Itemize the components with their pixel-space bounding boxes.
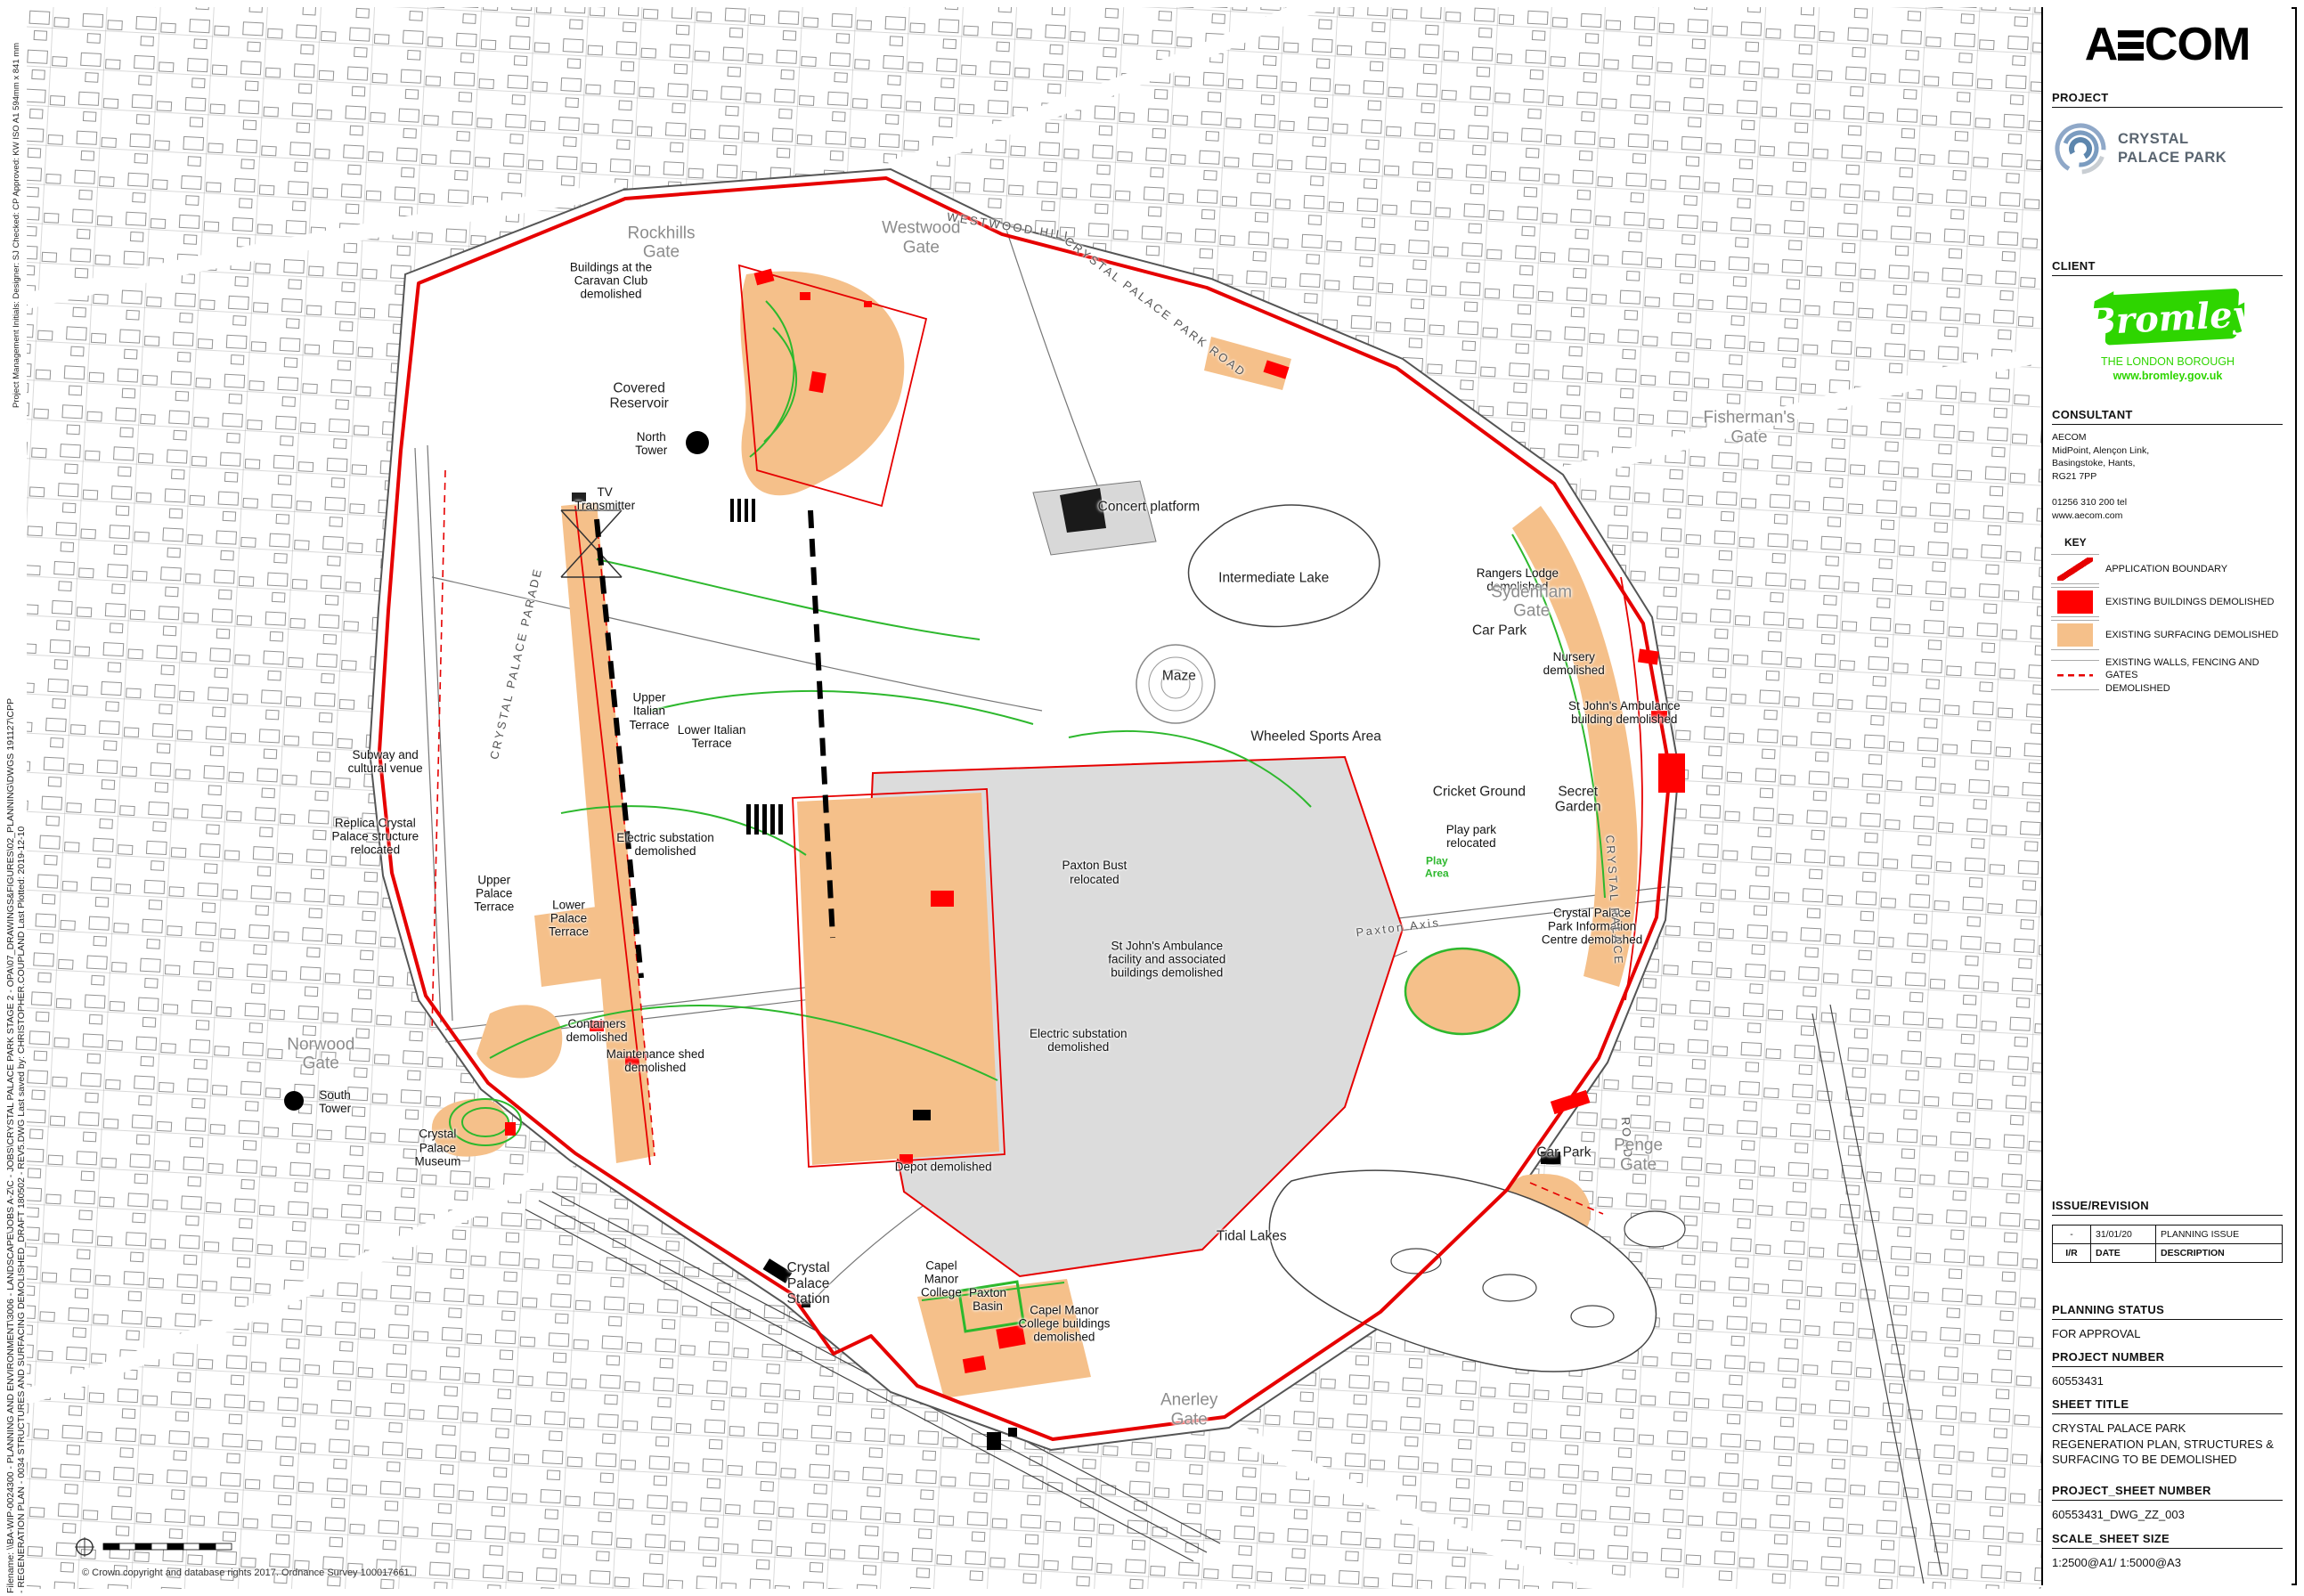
key-swatch-dash bbox=[2057, 664, 2093, 687]
key-swatch-red bbox=[2057, 590, 2093, 614]
section-planning-status: PLANNING STATUS FOR APPROVAL bbox=[2043, 1303, 2292, 1342]
map-label: Capel Manor College buildings demolished bbox=[1019, 1303, 1111, 1343]
key-item-label: EXISTING WALLS, FENCING AND GATES DEMOLI… bbox=[2105, 656, 2283, 695]
revision-cell: 31/01/20 bbox=[2091, 1225, 2156, 1244]
key-item-label: EXISTING BUILDINGS DEMOLISHED bbox=[2105, 596, 2274, 608]
map-label: Nursery demolished bbox=[1543, 650, 1605, 677]
crystal-palace-park-logo-icon bbox=[2052, 120, 2109, 177]
map-label: Capel Manor College bbox=[921, 1258, 962, 1299]
bromley-logo: Bromley THE LONDON BOROUGH www.bromley.g… bbox=[2083, 283, 2252, 383]
map-label: Maze bbox=[1162, 669, 1196, 684]
project-sheet-number-label: PROJECT_SHEET NUMBER bbox=[2052, 1484, 2283, 1501]
key-item: EXISTING WALLS, FENCING AND GATES DEMOLI… bbox=[2052, 656, 2283, 695]
map-label: Concert platform bbox=[1098, 500, 1201, 515]
map-label: St John's Ambulance building demolished bbox=[1568, 699, 1681, 726]
map-label: Upper Italian Terrace bbox=[629, 691, 669, 731]
map-label: Penge Gate bbox=[1614, 1136, 1663, 1175]
revision-header-ir: I/R bbox=[2053, 1244, 2091, 1263]
revision-cell: - bbox=[2053, 1225, 2091, 1244]
map-label: CRYSTAL PALACE PARK ROAD bbox=[1062, 235, 1249, 380]
map-label: Electric substation demolished bbox=[616, 830, 714, 857]
map-label: Play Area bbox=[1425, 856, 1449, 880]
section-project-sheet-number: PROJECT_SHEET NUMBER 60553431_DWG_ZZ_003 bbox=[2043, 1484, 2292, 1523]
title-block: ACOM PROJECT CRYSTAL PALACE PARK CLIENT … bbox=[2041, 7, 2292, 1585]
map-label: Crystal Palace Station bbox=[787, 1260, 830, 1307]
map-label: Replica Crystal Palace structure relocat… bbox=[332, 816, 419, 856]
key-item-label: EXISTING SURFACING DEMOLISHED bbox=[2105, 629, 2278, 641]
map-label: Lower Palace Terrace bbox=[549, 898, 589, 938]
map-label: Buildings at the Caravan Club demolished bbox=[570, 261, 652, 301]
scale-sheet-size-value: 1:2500@A1/ 1:5000@A3 bbox=[2052, 1555, 2283, 1571]
map-label: Wheeled Sports Area bbox=[1250, 729, 1380, 744]
key-item-label: APPLICATION BOUNDARY bbox=[2105, 563, 2227, 575]
svg-text:Bromley: Bromley bbox=[2083, 293, 2251, 344]
map-label: Lower Italian Terrace bbox=[678, 723, 746, 750]
project-sheet-number-value: 60553431_DWG_ZZ_003 bbox=[2052, 1507, 2283, 1523]
section-sheet-title: SHEET TITLE CRYSTAL PALACE PARK REGENERA… bbox=[2043, 1397, 2292, 1468]
map-label: Maintenance shed demolished bbox=[607, 1047, 704, 1074]
map-label: Car Park bbox=[1536, 1144, 1591, 1160]
os-copyright: © Crown copyright and database rights 20… bbox=[82, 1567, 412, 1578]
map-label: Fisherman's Gate bbox=[1704, 409, 1795, 447]
planning-status-label: PLANNING STATUS bbox=[2052, 1303, 2283, 1320]
section-project: PROJECT CRYSTAL PALACE PARK bbox=[2043, 91, 2292, 177]
section-issue-revision: ISSUE/REVISION -31/01/20PLANNING ISSUE I… bbox=[2043, 1199, 2292, 1263]
map-label: Intermediate Lake bbox=[1218, 570, 1329, 585]
section-project-number: PROJECT NUMBER 60553431 bbox=[2043, 1350, 2292, 1389]
map-label: Tidal Lakes bbox=[1217, 1228, 1287, 1243]
map-label: Cricket Ground bbox=[1433, 784, 1526, 799]
map-label: CRYSTAL PALACE PARADE bbox=[488, 566, 545, 761]
map-label: Norwood Gate bbox=[287, 1035, 354, 1073]
map-label: Rockhills Gate bbox=[628, 224, 696, 262]
map-label: Westwood Gate bbox=[882, 219, 960, 257]
map-label: CRYSTAL PALACE bbox=[1603, 835, 1625, 966]
key-item: APPLICATION BOUNDARY bbox=[2052, 558, 2283, 581]
consultant-label: CONSULTANT bbox=[2052, 408, 2283, 425]
revision-rows: -31/01/20PLANNING ISSUE bbox=[2053, 1225, 2283, 1244]
map-label: TV Transmitter bbox=[574, 485, 635, 512]
aecom-logo: ACOM bbox=[2043, 18, 2292, 71]
map-label: Covered Reservoir bbox=[609, 381, 668, 412]
revision-header-description: DESCRIPTION bbox=[2156, 1244, 2283, 1263]
map-label: Play park relocated bbox=[1446, 823, 1496, 850]
margin-filename-line2: - REGENERATION PLAN - 0034 STRUCTURES AN… bbox=[16, 826, 27, 1593]
project-label: PROJECT bbox=[2052, 91, 2283, 108]
margin-project-management-text: Project Management Initials: Designer: S… bbox=[12, 43, 21, 408]
map-label: Car Park bbox=[1472, 623, 1527, 638]
bromley-tagline: THE LONDON BOROUGH bbox=[2100, 355, 2234, 368]
map-labels: Rockhills GateWestwood GateWESTWOOD HILL… bbox=[27, 7, 2041, 1589]
key-item: EXISTING BUILDINGS DEMOLISHED bbox=[2052, 590, 2283, 614]
map-label: WESTWOOD HILL bbox=[946, 210, 1074, 243]
project-name: CRYSTAL PALACE PARK bbox=[2118, 130, 2227, 168]
revision-cell: PLANNING ISSUE bbox=[2156, 1225, 2283, 1244]
map-label: Subway and cultural venue bbox=[348, 748, 423, 775]
section-key: KEY APPLICATION BOUNDARYEXISTING BUILDIN… bbox=[2043, 536, 2292, 704]
map-label: North Tower bbox=[635, 430, 667, 457]
map-label: Crystal Palace Park Information Centre d… bbox=[1542, 906, 1642, 946]
key-items: APPLICATION BOUNDARYEXISTING BUILDINGS D… bbox=[2052, 558, 2283, 695]
map-label: Containers demolished bbox=[566, 1017, 628, 1044]
project-number-value: 60553431 bbox=[2052, 1373, 2283, 1389]
client-label: CLIENT bbox=[2052, 259, 2283, 276]
key-label: KEY bbox=[2064, 536, 2283, 549]
map-panel: Rockhills GateWestwood GateWESTWOOD HILL… bbox=[27, 7, 2041, 1589]
project-number-label: PROJECT NUMBER bbox=[2052, 1350, 2283, 1367]
key-swatch-orange bbox=[2057, 623, 2093, 647]
scale-bar bbox=[73, 1534, 260, 1560]
sheet-title-value: CRYSTAL PALACE PARK REGENERATION PLAN, S… bbox=[2052, 1421, 2283, 1468]
map-label: Depot demolished bbox=[895, 1160, 992, 1173]
map-label: Sydenham Gate bbox=[1491, 583, 1572, 622]
scale-sheet-size-label: SCALE_SHEET SIZE bbox=[2052, 1532, 2283, 1549]
revision-table: -31/01/20PLANNING ISSUE I/R DATE DESCRIP… bbox=[2052, 1225, 2283, 1263]
map-label: Paxton Basin bbox=[969, 1286, 1006, 1313]
map-label: Crystal Palace Museum bbox=[415, 1128, 461, 1168]
consultant-address: AECOM MidPoint, Alençon Link, Basingstok… bbox=[2052, 431, 2283, 523]
drawing-sheet: { "margins": { "meta": "Project Manageme… bbox=[0, 0, 2304, 1596]
issue-revision-label: ISSUE/REVISION bbox=[2052, 1199, 2283, 1216]
margin-filename-line1: Filename: \\BA-WIP-0024300 - PLANNING AN… bbox=[5, 698, 16, 1593]
map-label: Paxton Bust relocated bbox=[1062, 859, 1127, 885]
map-label: Anerley Gate bbox=[1160, 1391, 1217, 1429]
map-label: Electric substation demolished bbox=[1030, 1027, 1128, 1054]
section-consultant: CONSULTANT AECOM MidPoint, Alençon Link,… bbox=[2043, 408, 2292, 523]
key-item: EXISTING SURFACING DEMOLISHED bbox=[2052, 623, 2283, 647]
map-label: St John's Ambulance facility and associa… bbox=[1108, 939, 1225, 979]
map-label: Upper Palace Terrace bbox=[474, 873, 514, 913]
sheet-title-label: SHEET TITLE bbox=[2052, 1397, 2283, 1414]
planning-status-value: FOR APPROVAL bbox=[2052, 1326, 2283, 1342]
revision-header-date: DATE bbox=[2091, 1244, 2156, 1263]
map-label: South Tower bbox=[319, 1088, 351, 1115]
key-swatch-line bbox=[2057, 558, 2093, 581]
bromley-url: www.bromley.gov.uk bbox=[2112, 370, 2222, 382]
map-label: Paxton Axis bbox=[1356, 916, 1441, 940]
section-scale-sheet-size: SCALE_SHEET SIZE 1:2500@A1/ 1:5000@A3 bbox=[2043, 1532, 2292, 1571]
map-label: Secret Garden bbox=[1555, 784, 1601, 815]
section-client: CLIENT Bromley THE LONDON BOROUGH www.br… bbox=[2043, 259, 2292, 386]
